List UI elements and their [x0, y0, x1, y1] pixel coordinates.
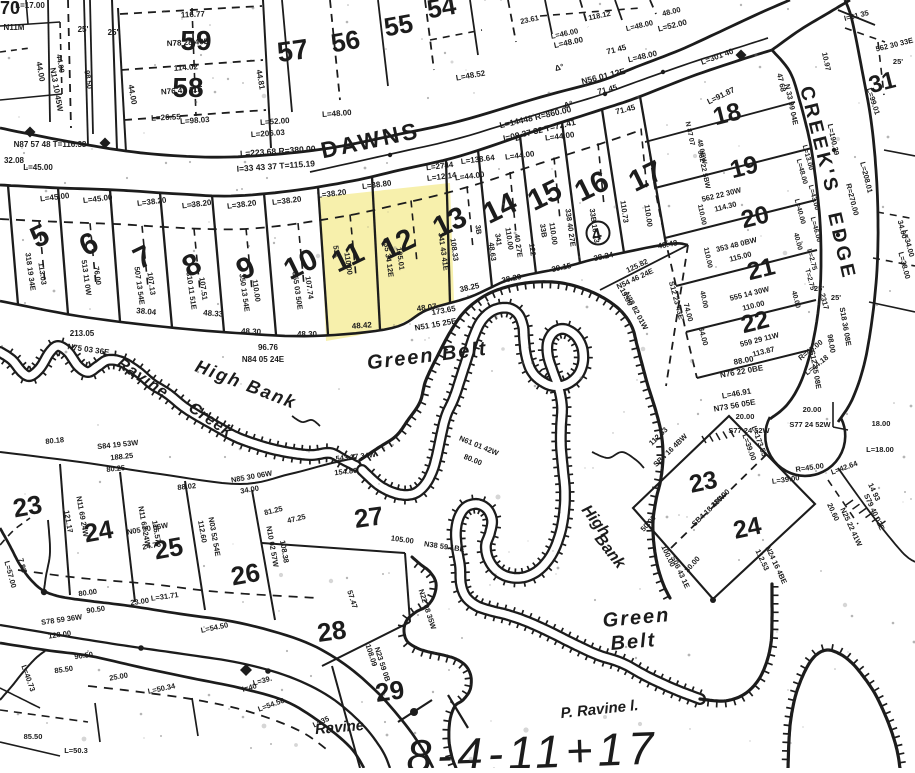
svg-text:107.13: 107.13 — [145, 272, 157, 296]
svg-text:N87 57 48 T=116.38: N87 57 48 T=116.38 — [14, 140, 87, 149]
svg-text:10.97: 10.97 — [820, 51, 833, 71]
svg-text:23: 23 — [687, 466, 720, 499]
svg-text:154.80: 154.80 — [334, 466, 358, 477]
svg-text:Green: Green — [602, 604, 671, 632]
svg-text:N84 05 24E: N84 05 24E — [242, 355, 285, 364]
svg-text:80.18: 80.18 — [45, 435, 65, 446]
svg-text:96.76: 96.76 — [258, 343, 279, 352]
svg-text:L=42.64: L=42.64 — [830, 458, 860, 476]
svg-text:90.50: 90.50 — [74, 650, 94, 662]
svg-text:33B: 33B — [538, 223, 549, 238]
svg-text:6: 6 — [74, 226, 103, 263]
svg-text:107.51: 107.51 — [197, 277, 209, 301]
svg-text:Ravine: Ravine — [114, 355, 172, 402]
svg-text:L=48.00: L=48.00 — [625, 18, 654, 33]
svg-text:110.00: 110.00 — [250, 279, 262, 303]
svg-text:N56 01 12E: N56 01 12E — [580, 66, 626, 87]
svg-text:353 48 0BW: 353 48 0BW — [715, 235, 759, 254]
svg-text:16: 16 — [570, 164, 614, 208]
svg-text:L=206.03: L=206.03 — [251, 128, 286, 139]
svg-text:40.00: 40.00 — [698, 290, 709, 309]
svg-text:80.25: 80.25 — [106, 463, 126, 474]
svg-text:48.30: 48.30 — [297, 330, 318, 339]
svg-text:80.00: 80.00 — [463, 452, 484, 467]
svg-text:L=18.00: L=18.00 — [866, 445, 894, 454]
svg-text:L=50.3: L=50.3 — [64, 746, 88, 755]
svg-text:44.00: 44.00 — [34, 61, 46, 83]
svg-text:121.17: 121.17 — [62, 509, 75, 533]
svg-text:44.00: 44.00 — [126, 84, 138, 106]
svg-text:128.00: 128.00 — [48, 628, 72, 640]
svg-text:Bank: Bank — [591, 531, 629, 573]
svg-text:47 68: 47 68 — [775, 72, 788, 92]
svg-text:513 11 0W: 513 11 0W — [80, 259, 94, 297]
svg-text:57: 57 — [275, 33, 310, 68]
svg-text:N03 52 54E: N03 52 54E — [207, 516, 223, 557]
svg-text:71 45: 71 45 — [606, 43, 628, 57]
svg-text:L=223.68 R=380.00: L=223.68 R=380.00 — [240, 143, 316, 158]
svg-text:88.02: 88.02 — [177, 481, 197, 492]
svg-text:105.00: 105.00 — [390, 533, 414, 545]
svg-text:114.02: 114.02 — [174, 62, 199, 73]
svg-text:19: 19 — [727, 150, 761, 184]
svg-text:76.00: 76.00 — [92, 266, 104, 286]
svg-text:25': 25' — [893, 57, 903, 66]
svg-text:213.05: 213.05 — [70, 329, 95, 338]
svg-text:Creek: Creek — [185, 399, 236, 441]
svg-text:110.00: 110.00 — [702, 247, 713, 269]
svg-text:110.00: 110.00 — [642, 204, 654, 228]
svg-text:32.08: 32.08 — [4, 156, 25, 165]
svg-text:57.47: 57.47 — [345, 589, 359, 610]
svg-text:20: 20 — [738, 200, 772, 234]
svg-text:71 45: 71 45 — [597, 83, 619, 97]
svg-text:188.25: 188.25 — [110, 451, 134, 462]
svg-text:L=208.01: L=208.01 — [858, 161, 874, 194]
svg-text:20.00: 20.00 — [803, 405, 822, 414]
svg-text:L=40.73: L=40.73 — [19, 664, 37, 693]
svg-text:Δ°: Δ° — [563, 99, 574, 110]
svg-text:38.04: 38.04 — [136, 306, 157, 317]
svg-text:26: 26 — [229, 557, 263, 592]
svg-text:20.60: 20.60 — [825, 502, 841, 523]
svg-text:Green Belt: Green Belt — [366, 338, 489, 375]
svg-text:122: 122 — [527, 243, 538, 257]
svg-text:25': 25' — [831, 293, 841, 302]
svg-text:27: 27 — [352, 500, 385, 534]
svg-text:L=57.00: L=57.00 — [2, 560, 18, 589]
svg-text:80.00: 80.00 — [78, 587, 98, 599]
svg-text:48.42: 48.42 — [352, 320, 373, 330]
svg-text:25': 25' — [108, 28, 119, 37]
svg-text:L=2.75: L=2.75 — [805, 248, 817, 271]
svg-text:L=52.00: L=52.00 — [260, 116, 291, 127]
svg-text:7.85: 7.85 — [16, 557, 28, 573]
svg-text:362 22 5BW: 362 22 5BW — [696, 150, 711, 190]
svg-text:P. Ravine l.: P. Ravine l. — [560, 697, 639, 722]
svg-text:39.15: 39.15 — [551, 261, 573, 274]
svg-text:High Bank: High Bank — [193, 356, 300, 413]
svg-text:81.25: 81.25 — [263, 504, 283, 517]
svg-text:L=26.55: L=26.55 — [151, 112, 182, 123]
svg-text:28: 28 — [315, 614, 348, 648]
svg-text:118.12: 118.12 — [588, 9, 612, 22]
svg-text:23.61: 23.61 — [519, 13, 539, 26]
svg-text:24: 24 — [731, 512, 764, 545]
svg-text:48.30: 48.30 — [241, 327, 262, 337]
svg-text:38.25: 38.25 — [459, 281, 481, 294]
svg-text:N10 02 57W: N10 02 57W — [264, 525, 280, 569]
svg-text:25': 25' — [78, 25, 89, 34]
svg-text:47.25: 47.25 — [286, 512, 306, 525]
svg-text:34.00: 34.00 — [240, 483, 260, 495]
svg-text:L=98.03: L=98.03 — [180, 115, 211, 126]
svg-text:531: 531 — [331, 245, 342, 259]
svg-text:98.50: 98.50 — [82, 70, 94, 90]
svg-text:L=48.52: L=48.52 — [455, 68, 486, 82]
svg-text:3B: 3B — [473, 224, 483, 235]
svg-text:L=38.20: L=38.20 — [271, 194, 302, 207]
svg-text:110.00: 110.00 — [696, 204, 707, 226]
svg-text:L=31.71: L=31.71 — [150, 590, 179, 603]
svg-text:17: 17 — [624, 154, 668, 198]
svg-text:562 30 33E: 562 30 33E — [875, 36, 914, 54]
svg-text:DAWNS: DAWNS — [318, 117, 422, 163]
svg-text:110.73: 110.73 — [618, 200, 630, 224]
svg-text:48.43: 48.43 — [657, 238, 679, 250]
svg-text:S78 59 36W: S78 59 36W — [41, 612, 84, 627]
svg-text:48.33: 48.33 — [203, 308, 224, 318]
svg-text:44.81: 44.81 — [254, 69, 266, 91]
svg-text:38.24: 38.24 — [593, 250, 615, 263]
svg-text:R=270.00: R=270.00 — [844, 182, 861, 216]
svg-text:110.00: 110.00 — [547, 222, 559, 246]
svg-text:8-4-11+17: 8-4-11+17 — [405, 722, 659, 768]
svg-text:L=38.20: L=38.20 — [181, 198, 212, 211]
svg-text:L=12.14: L=12.14 — [426, 170, 457, 183]
svg-text:107.74: 107.74 — [303, 276, 315, 301]
svg-text:40 27E: 40 27E — [512, 233, 524, 258]
svg-text:338 40 27E: 338 40 27E — [563, 208, 577, 247]
svg-text:Belt: Belt — [610, 629, 658, 655]
svg-text:20.00: 20.00 — [736, 412, 755, 421]
svg-text:48.00: 48.00 — [661, 5, 681, 18]
svg-text:318 19 34E: 318 19 34E — [23, 252, 37, 291]
svg-text:54: 54 — [425, 0, 459, 24]
svg-text:S18 36 08E: S18 36 08E — [838, 306, 854, 346]
svg-text:5: 5 — [25, 218, 54, 255]
svg-text:N76 22 0BE: N76 22 0BE — [719, 363, 764, 380]
svg-text:I=33 43 37 T=115.19: I=33 43 37 T=115.19 — [236, 158, 315, 173]
svg-text:25': 25' — [814, 284, 824, 293]
svg-text:98.00: 98.00 — [825, 334, 837, 354]
svg-text:Ravine: Ravine — [314, 717, 364, 738]
svg-text:L=44.00: L=44.00 — [504, 149, 535, 162]
svg-text:18: 18 — [710, 97, 744, 131]
svg-text:55: 55 — [382, 8, 416, 43]
svg-text:L=52.00: L=52.00 — [657, 17, 688, 33]
svg-text:S77 24 52W: S77 24 52W — [789, 420, 831, 429]
svg-text:555 14 30W: 555 14 30W — [729, 284, 771, 303]
svg-text:N85 30 06W: N85 30 06W — [230, 468, 274, 484]
svg-text:Δ°: Δ° — [554, 62, 565, 73]
svg-text:113.87: 113.87 — [751, 344, 775, 358]
svg-text:113.03: 113.03 — [36, 262, 48, 286]
svg-text:S77 24 52W: S77 24 52W — [728, 426, 770, 435]
svg-text:L=50.34: L=50.34 — [147, 681, 177, 696]
svg-text:56: 56 — [329, 24, 363, 59]
svg-text:85.50: 85.50 — [24, 732, 43, 741]
svg-text:N 87 07: N 87 07 — [683, 121, 695, 147]
svg-text:EDGE: EDGE — [823, 210, 860, 282]
svg-text:85.50: 85.50 — [54, 664, 74, 676]
svg-text:S84 19 53W: S84 19 53W — [97, 438, 140, 451]
svg-text:L=17.00: L=17.00 — [15, 1, 45, 10]
svg-text:25.00: 25.00 — [109, 670, 129, 682]
svg-text:23: 23 — [11, 489, 45, 524]
svg-text:L=38.20: L=38.20 — [226, 198, 257, 211]
svg-text:L=48.00: L=48.00 — [322, 108, 353, 119]
svg-text:L=45.00: L=45.00 — [39, 191, 70, 204]
svg-text:116.77: 116.77 — [181, 9, 206, 19]
svg-text:90.50: 90.50 — [86, 604, 106, 616]
svg-text:L=38.80: L=38.80 — [361, 178, 392, 191]
svg-text:L=38.20: L=38.20 — [136, 195, 167, 208]
svg-text:L=48.00: L=48.00 — [627, 49, 658, 65]
svg-text:23.00: 23.00 — [130, 596, 150, 608]
svg-text:L=45.00: L=45.00 — [82, 193, 113, 206]
svg-text:112.53: 112.53 — [647, 425, 669, 447]
svg-text:L=54.50: L=54.50 — [257, 696, 286, 714]
svg-text:114.30: 114.30 — [713, 199, 737, 213]
svg-text:18.00: 18.00 — [872, 419, 891, 428]
